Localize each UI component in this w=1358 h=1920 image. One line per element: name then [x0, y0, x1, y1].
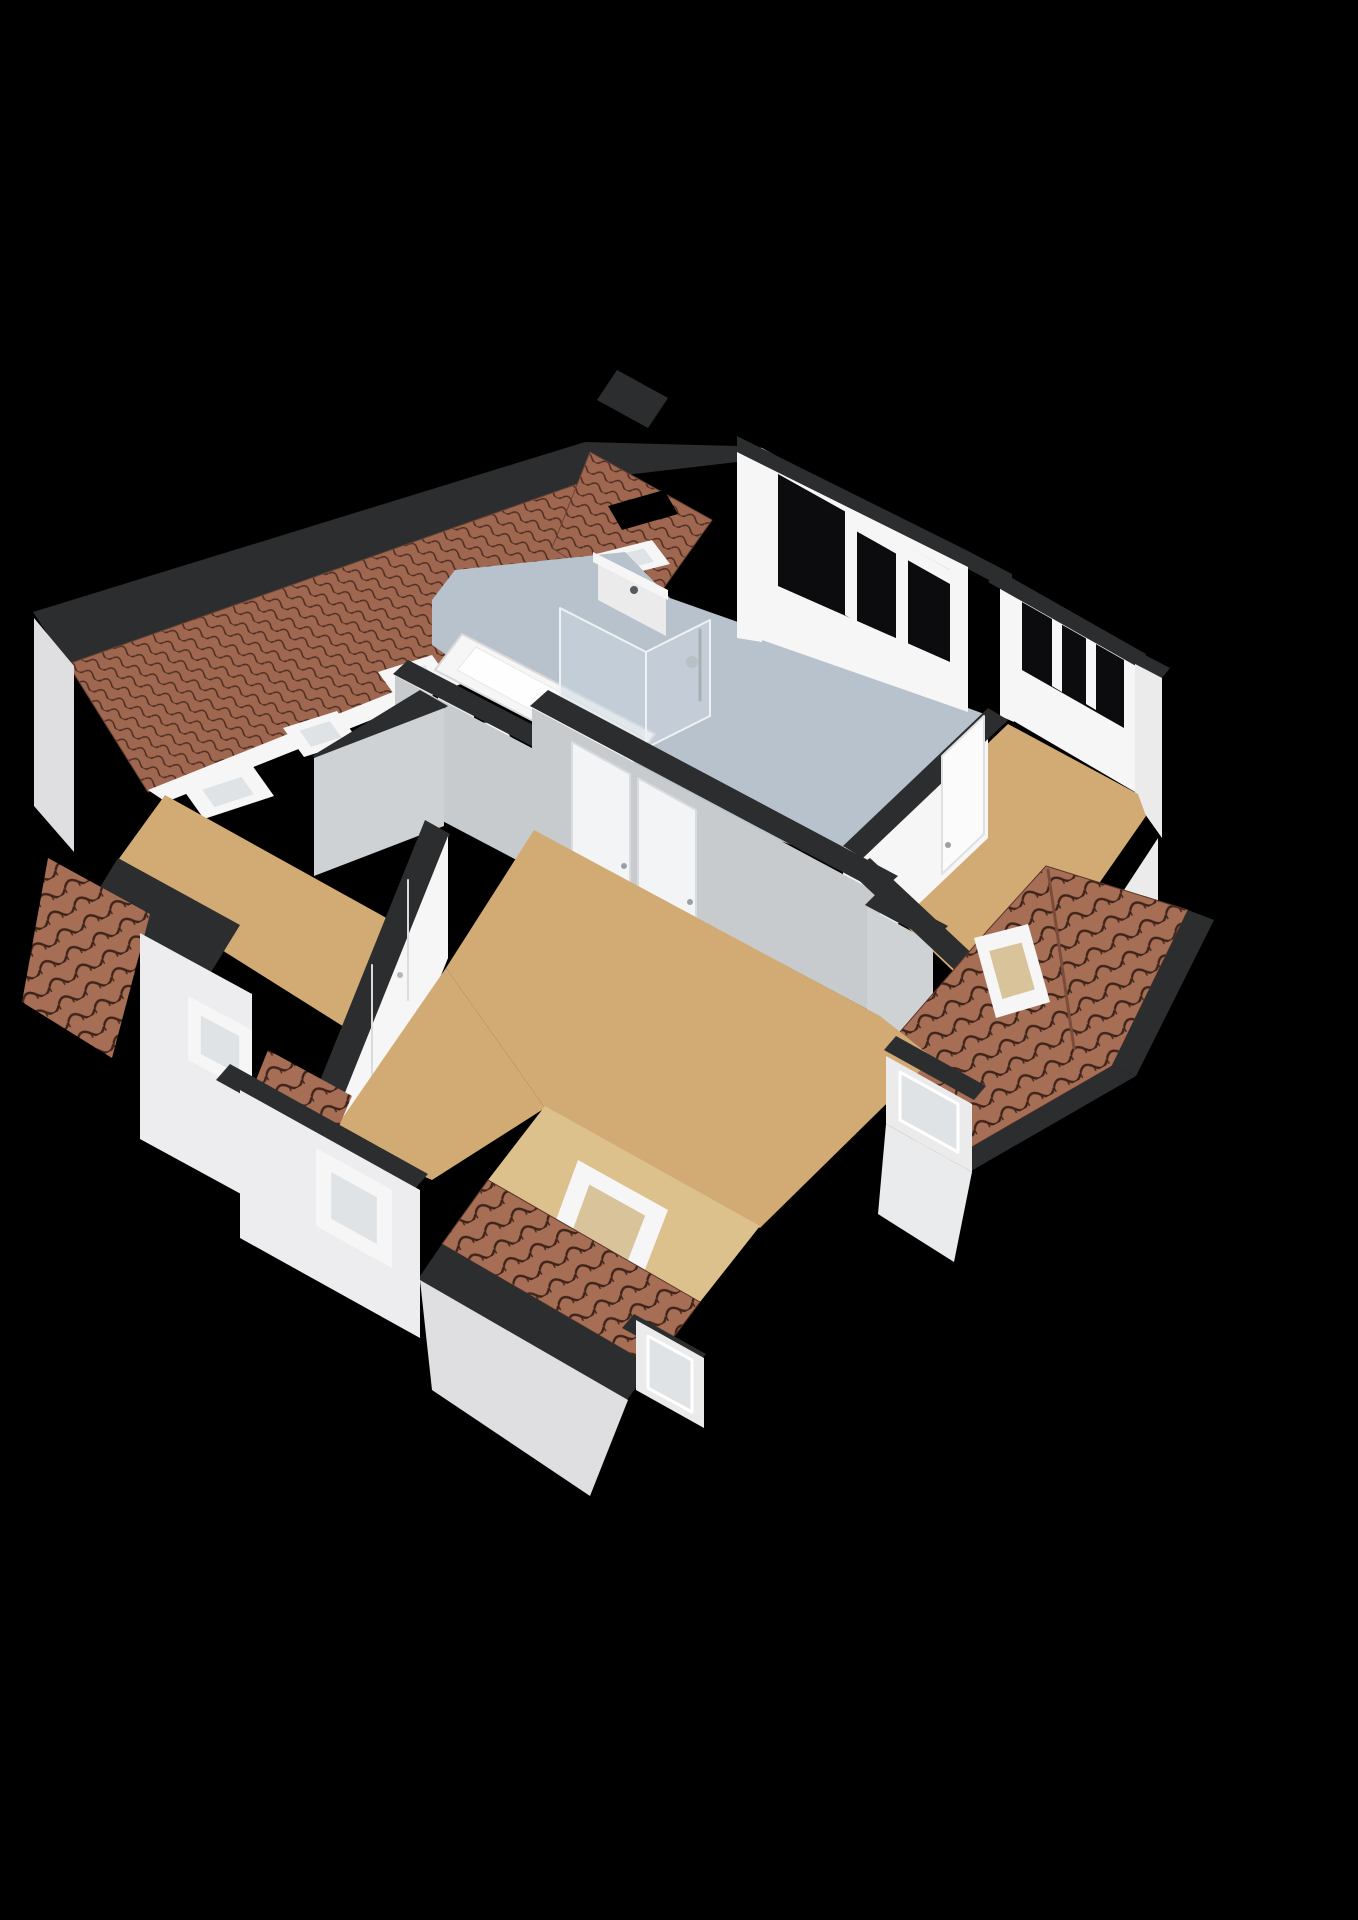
right-door-handle	[945, 842, 951, 848]
chimney	[597, 370, 668, 428]
shower-head	[686, 656, 698, 668]
landing-window-mullion-1	[845, 510, 857, 622]
closet-door-2-handle	[687, 899, 693, 905]
closet-door-1-handle	[621, 863, 627, 869]
left-door-handle	[397, 972, 403, 978]
washbasin-faucet	[630, 586, 638, 594]
landing-window-jamb	[737, 444, 762, 642]
floorplan-canvas	[0, 0, 1358, 1920]
right-window-mullion-2	[1086, 636, 1096, 710]
floorplan-3d	[0, 0, 1358, 1920]
landing-window-mullion-2	[896, 539, 908, 646]
right-window-mullion-1	[1052, 617, 1062, 692]
right-window-jamb	[1000, 578, 1014, 722]
